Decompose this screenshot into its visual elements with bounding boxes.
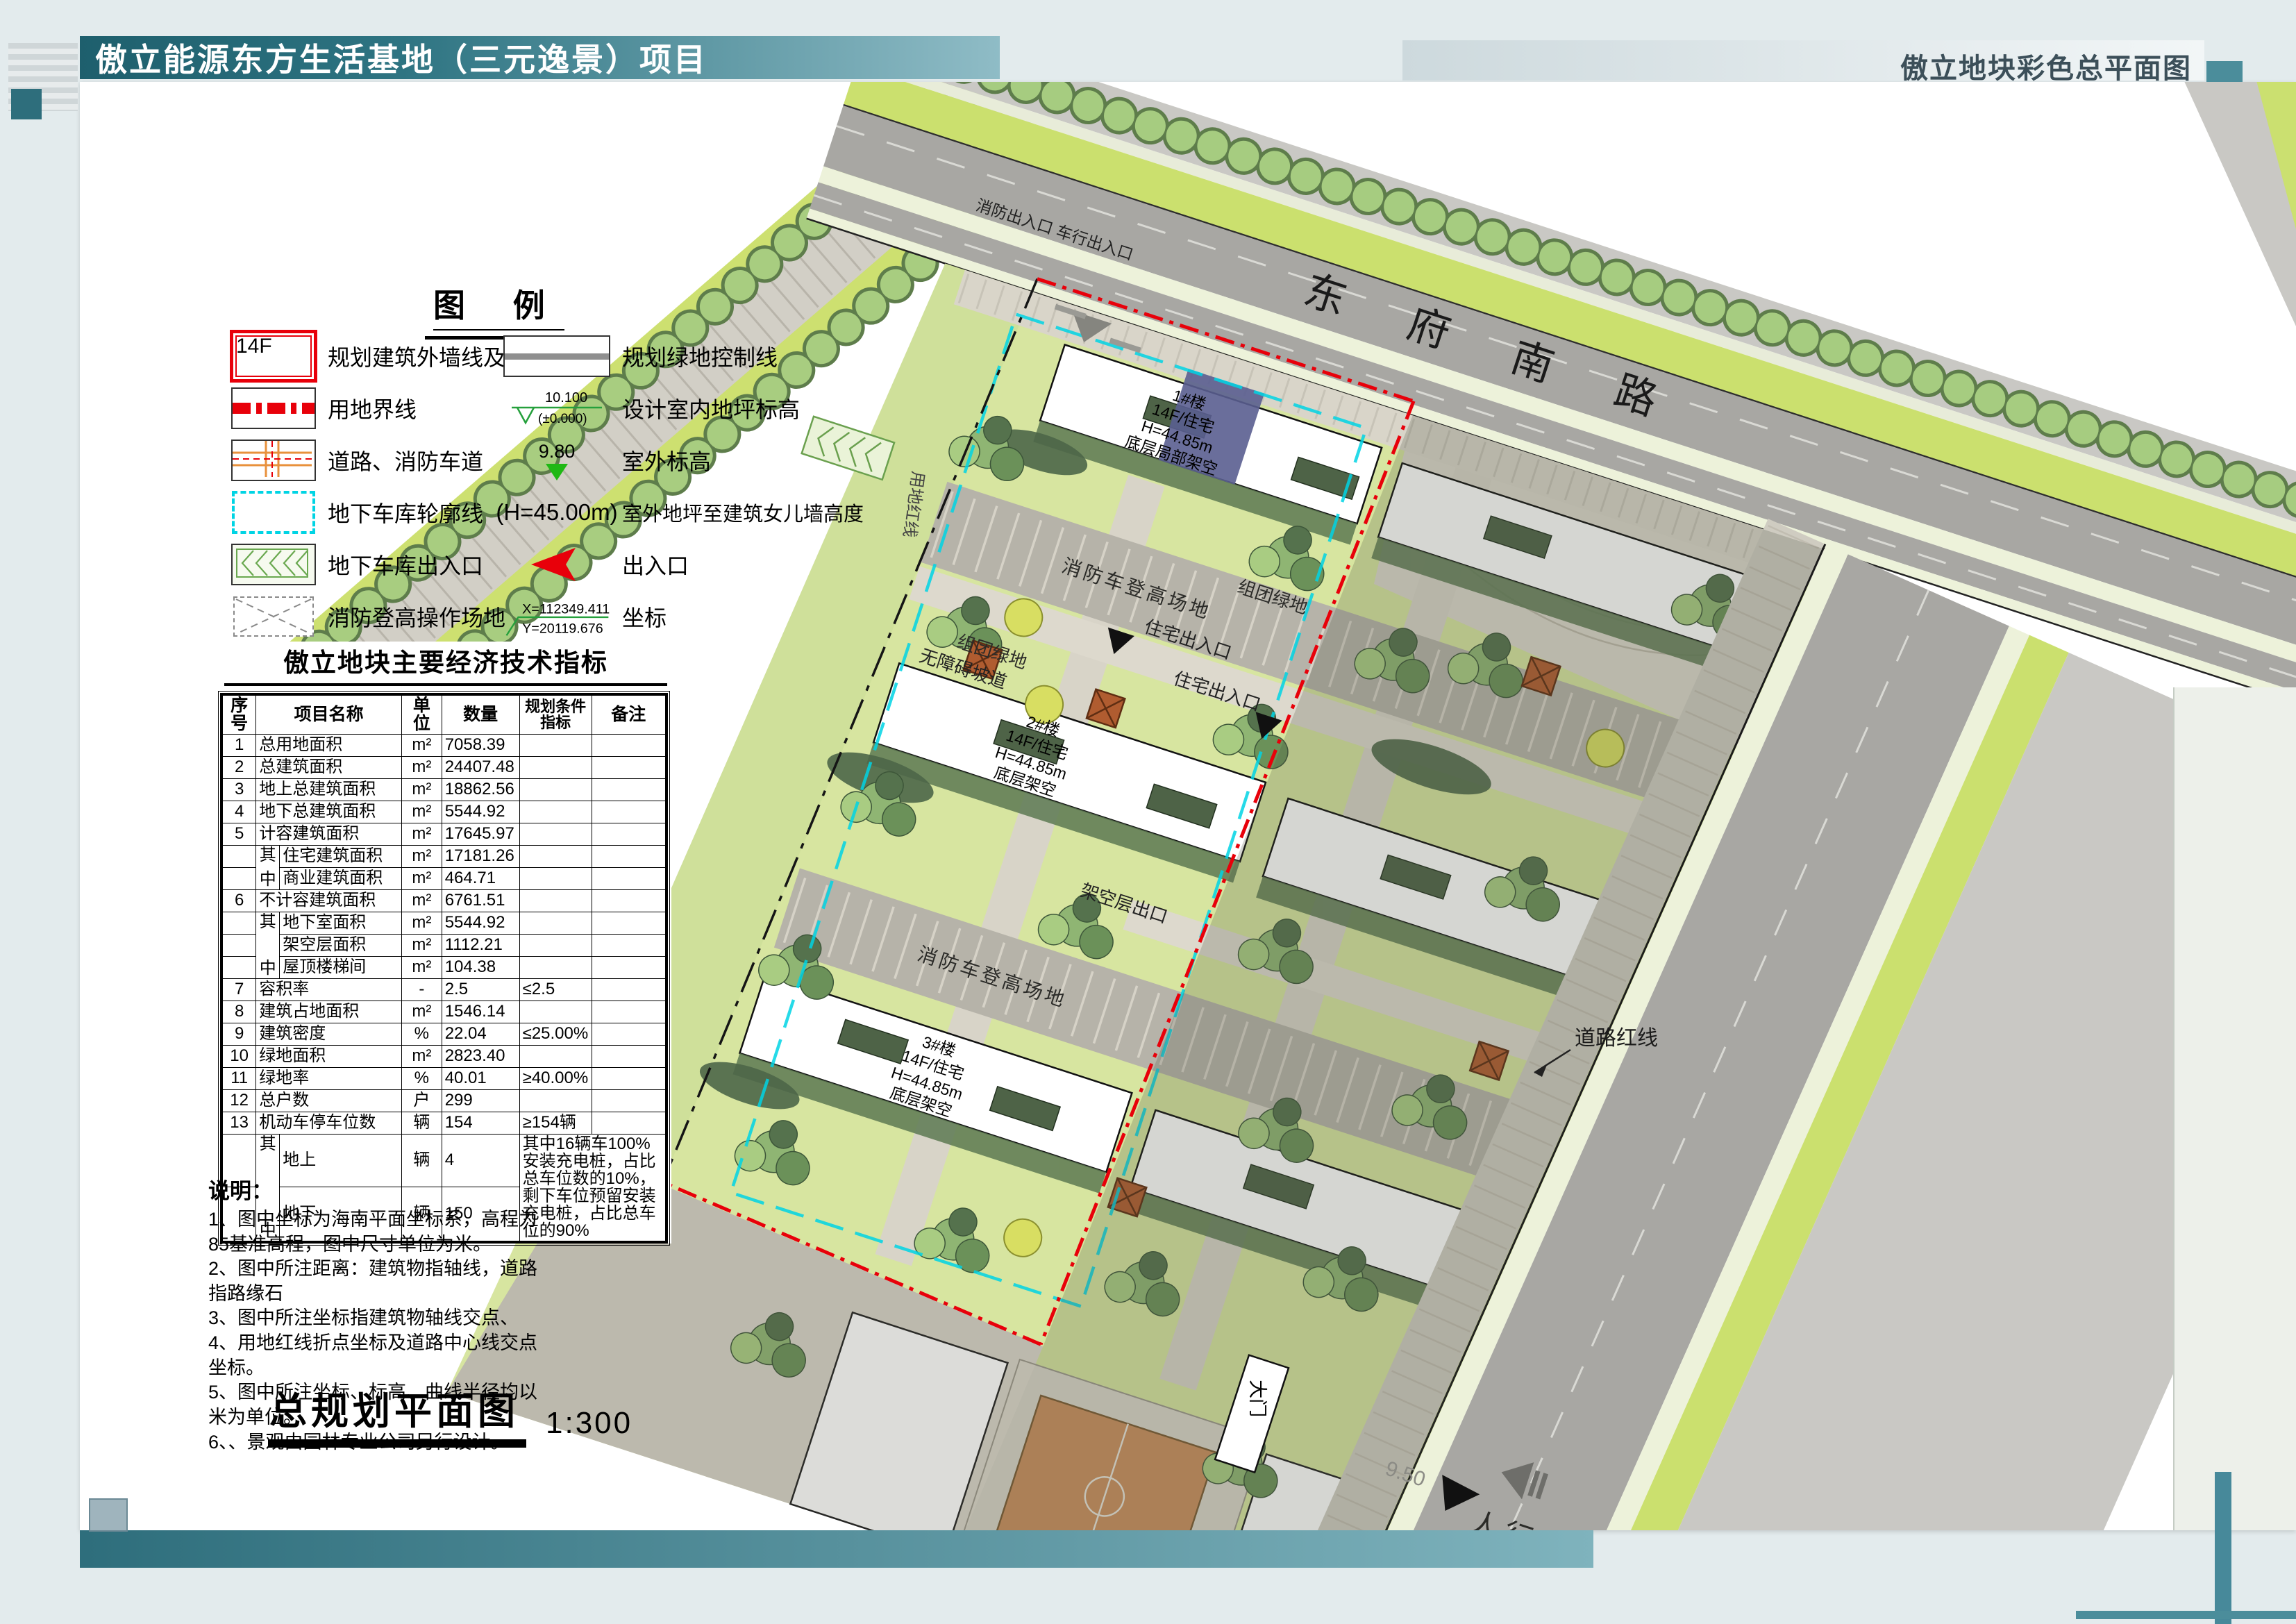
legend-label: 规划建筑外墙线及层数 (328, 340, 492, 372)
legend-symbol-road-cross (229, 440, 318, 480)
table-row: 4地下总建筑面积m²5544.92 (221, 801, 667, 823)
table-header-row: 序号 项目名称 单位 数量 规划条件指标 备注 (221, 694, 667, 734)
legend-row-4: 地下车库轮廓线 (H=45.00m) 室外地坪至建筑女儿墙高度 (229, 491, 854, 534)
table-row: 其中地下室面积m²5544.92 (221, 912, 667, 934)
svg-text:(±0.000): (±0.000) (538, 412, 587, 426)
legend-symbol-land-boundary (229, 388, 318, 428)
legend: 14F 规划建筑外墙线及层数 规划绿地控制线 用地界线 10.100 (229, 335, 854, 638)
road-red-line-label: 道路红线 (1575, 1027, 1658, 1050)
header-title-bar: 傲立能源东方生活基地（三元逸景）项目 (80, 36, 1000, 79)
footer-bar (80, 1530, 1593, 1568)
legend-label: 设计室内地坪标高 (622, 392, 800, 424)
drawing-sheet-page: 大门 东 府 南 路 消防出入口 车行出入口 消防车登高场地 组团绿地 住宅出入… (0, 0, 2296, 1624)
plan-title-block: 总规划平面图 1:300 (268, 1380, 632, 1448)
table-row: 架空层面积m²1112.21 (221, 934, 667, 956)
note-item: 4、用地红线折点坐标及道路中心线交点坐标。 (208, 1331, 542, 1380)
legend-symbol-garage-entrance (229, 544, 318, 585)
outdoor-elevation-triangle (546, 464, 568, 480)
top-right-square-decoration (2206, 61, 2243, 82)
legend-symbol-garage-outline (229, 492, 318, 533)
table-row: 其中住宅建筑面积m²17181.26 (221, 845, 667, 867)
legend-label: 道路、消防车道 (328, 444, 492, 476)
note-item: 1、图中坐标为海南平面坐标系，高程为85基准高程，图中尺寸单位为米。 (208, 1207, 542, 1257)
corner-square-decoration (11, 89, 42, 119)
economic-indicator-table: 序号 项目名称 单位 数量 规划条件指标 备注 1总用地面积m²7058.39 … (220, 693, 668, 1244)
plan-title: 总规划平面图 (268, 1380, 526, 1448)
plan-scale: 1:300 (546, 1406, 632, 1448)
legend-symbol-height-note: (H=45.00m) (501, 491, 612, 534)
table-row: 6不计容建筑面积m²6761.51 (221, 889, 667, 912)
adjacent-sheet-fragment (2173, 687, 2296, 1530)
table-row: 1总用地面积m²7058.39 (221, 734, 667, 756)
entrance-arrow-icon (531, 548, 576, 581)
legend-symbol-coordinate: X=112349.411 Y=20119.676 (501, 595, 612, 638)
right-vertical-bar-decoration (2215, 1472, 2231, 1624)
legend-label: 地下车库轮廓线 (328, 496, 492, 528)
svg-text:Y=20119.676: Y=20119.676 (522, 621, 603, 637)
legend-label: 坐标 (622, 601, 667, 633)
sheet-subtitle: 傲立地块彩色总平面图 (1900, 46, 2192, 86)
legend-symbol-fire-platform (229, 596, 318, 637)
legend-sample-floors: 14F (236, 335, 272, 358)
legend-label: 室外地坪至建筑女儿墙高度 (622, 498, 864, 527)
legend-row-1: 14F 规划建筑外墙线及层数 规划绿地控制线 (229, 335, 854, 378)
legend-label: 地下车库出入口 (328, 549, 492, 580)
legend-row-2: 用地界线 10.100 (±0.000) 设计室内地坪标高 (229, 387, 854, 430)
table-row: 7容积率-2.5≤2.5 (221, 978, 667, 1001)
table-row: 5计容建筑面积m²17645.97 (221, 823, 667, 845)
page-title: 傲立能源东方生活基地（三元逸景）项目 (80, 35, 707, 81)
legend-row-5: 地下车库出入口 出入口 (229, 543, 854, 586)
note-item: 3、图中所注坐标指建筑物轴线交点、 (208, 1306, 542, 1331)
notes-title: 说明： (208, 1178, 542, 1206)
table-row: 屋顶楼梯间m²104.38 (221, 956, 667, 978)
legend-symbol-indoor-elevation: 10.100 (±0.000) (501, 387, 612, 430)
legend-label: 室外标高 (622, 444, 711, 476)
legend-symbol-building-outline: 14F (229, 336, 318, 376)
table-row: 3地上总建筑面积m²18862.56 (221, 778, 667, 801)
table-row: 11绿地率%40.01≥40.00% (221, 1067, 667, 1089)
table-row: 13机动车停车位数辆154≥154辆 (221, 1112, 667, 1134)
legend-row-3: 道路、消防车道 9.80 室外标高 (229, 439, 854, 482)
legend-symbol-outdoor-elevation: 9.80 (501, 439, 612, 482)
table-row: 2总建筑面积m²24407.48 (221, 756, 667, 778)
legend-row-6: 消防登高操作场地 X=112349.411 Y=20119.676 坐标 (229, 595, 854, 638)
legend-label: 消防登高操作场地 (328, 601, 492, 633)
legend-label: 规划绿地控制线 (622, 340, 778, 372)
footer-square-decoration (89, 1498, 128, 1532)
table-row: 10绿地面积m²2823.40 (221, 1045, 667, 1067)
gate-label: 大门 (1247, 1380, 1268, 1417)
table-row: 9建筑密度%22.04≤25.00% (221, 1023, 667, 1045)
economic-indicator-panel: 傲立地块主要经济技术指标 序号 项目名称 单位 数量 规划条件指标 备注 1总用… (220, 642, 671, 1244)
bottom-right-line-decoration (2076, 1611, 2296, 1619)
legend-symbol-green-control-line (501, 335, 612, 378)
table-title: 傲立地块主要经济技术指标 (224, 642, 667, 686)
legend-title: 图 例 (425, 281, 567, 340)
legend-label: 用地界线 (328, 392, 492, 424)
legend-label: 出入口 (622, 549, 689, 580)
table-row: 商业建筑面积m²464.71 (221, 867, 667, 889)
table-row: 12总户数户299 (221, 1089, 667, 1112)
legend-symbol-entrance-arrow (501, 543, 612, 586)
svg-text:X=112349.411: X=112349.411 (522, 601, 610, 617)
table-row: 8建筑占地面积m²1546.14 (221, 1001, 667, 1023)
note-item: 2、图中所注距离：建筑物指轴线，道路指路缘石 (208, 1257, 542, 1306)
svg-text:10.100: 10.100 (545, 390, 587, 405)
